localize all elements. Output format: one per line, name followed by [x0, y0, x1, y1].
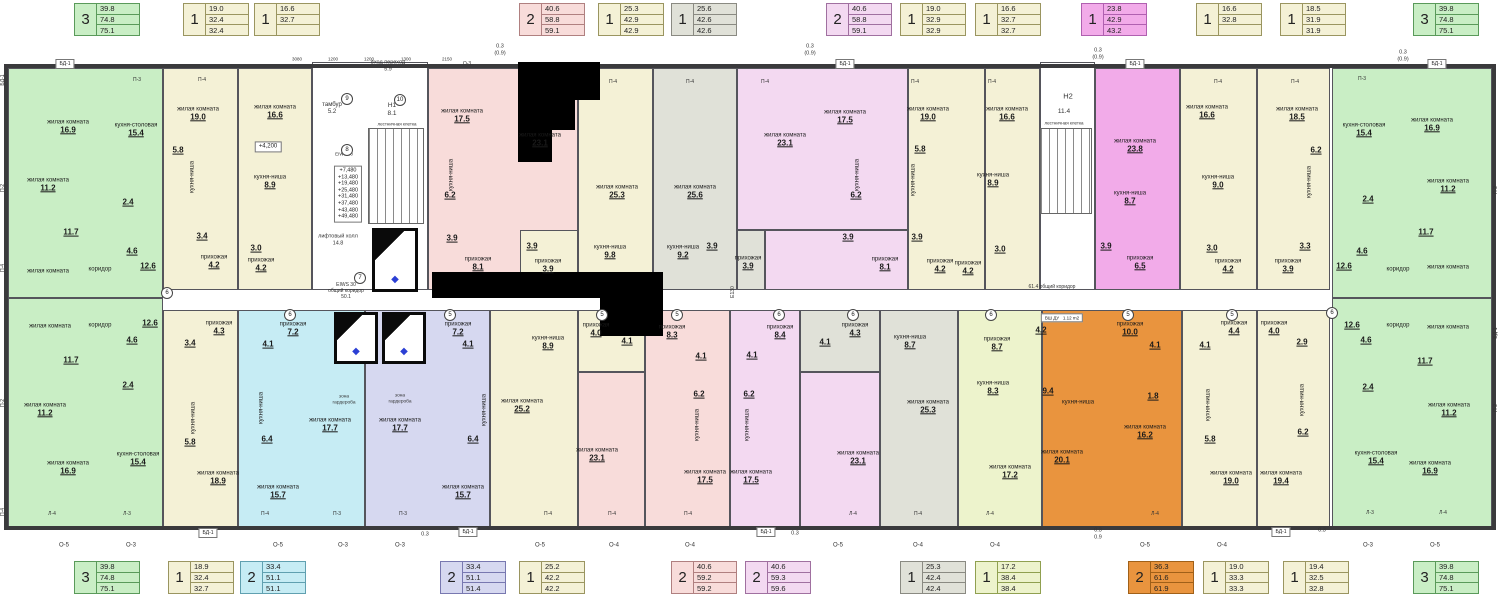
- room-label: жилая комната23.1: [837, 450, 879, 465]
- badge-room-count: 1: [976, 4, 998, 35]
- room-label: кухня-столовая15.4: [1343, 122, 1386, 137]
- room-label: жилая комната15.7: [442, 484, 484, 499]
- room-area: 8.3: [659, 331, 686, 340]
- room-area: 10.0: [1117, 328, 1144, 337]
- plan-annotation: П-3: [1358, 76, 1366, 82]
- unit-1r-25.3-bot[interactable]: [800, 310, 880, 372]
- badge-area-value: 61.6: [1151, 573, 1193, 584]
- top-badge-1[interactable]: 119.032.432.4: [183, 3, 249, 36]
- room-area: 1.8: [1147, 393, 1158, 402]
- room-area: 12.6: [1344, 322, 1360, 331]
- room-area: 4.1: [262, 341, 273, 350]
- plan-annotation: О-3: [338, 542, 348, 549]
- badge-room-count: 1: [901, 562, 923, 593]
- room-label: кухня-ниша9.2: [667, 244, 699, 259]
- badge-area-value: 43.2: [1104, 25, 1146, 35]
- room-area: 25.6: [674, 191, 716, 200]
- room-area: 4.2: [248, 264, 275, 273]
- room-label: прихожая8.7: [984, 336, 1011, 351]
- room-area: 16.9: [1409, 467, 1451, 476]
- badge-area-value: 61.9: [1151, 583, 1193, 593]
- room-area: 17.5: [730, 476, 772, 485]
- room-label: прихожая3.9: [735, 255, 762, 270]
- badge-area-value: 33.4: [463, 562, 505, 573]
- room-label: прихожая4.0: [583, 322, 610, 337]
- badge-area-value: 40.6: [542, 4, 584, 15]
- room-area: 3.3: [1299, 243, 1310, 252]
- top-badge-12[interactable]: 339.874.875.1: [1413, 3, 1479, 36]
- door-number: 5: [1122, 309, 1134, 321]
- bottom-badge-9[interactable]: 236.361.661.9: [1128, 561, 1194, 594]
- badge-areas: 18.932.432.7: [191, 562, 233, 593]
- room-area: 23.1: [519, 139, 561, 148]
- void-shaft: [432, 272, 663, 298]
- room-label: кухня-ниша9.8: [594, 244, 626, 259]
- badge-area-value: 33.3: [1226, 573, 1268, 584]
- room-area: 11.7: [63, 229, 78, 238]
- bottom-badge-7[interactable]: 125.342.442.4: [900, 561, 966, 594]
- badge-room-count: 1: [1082, 4, 1104, 35]
- top-badge-2[interactable]: 116.632.7: [254, 3, 320, 36]
- room-area: 2.4: [122, 199, 133, 208]
- room-label: жилая комната: [27, 269, 69, 276]
- room-area: 4.3: [842, 329, 869, 338]
- badge-areas: 19.032.432.4: [206, 4, 248, 35]
- room-label: кухня-столовая15.4: [117, 451, 160, 466]
- badge-areas: 25.642.642.6: [694, 4, 736, 35]
- badge-area-value: 74.8: [97, 15, 139, 26]
- elevator-icon: ◆: [391, 275, 399, 285]
- room-area: 18.5: [1276, 113, 1318, 122]
- room-label: 6.2: [693, 391, 704, 400]
- room-area: 8.7: [1114, 197, 1146, 206]
- unit-1r-19-bot[interactable]: [1182, 310, 1257, 528]
- room-area: 6.2: [1310, 147, 1321, 156]
- room-name: кухня-ниша: [1062, 400, 1094, 407]
- badge-areas: 16.632.7: [277, 4, 319, 35]
- plan-annotation: П-2: [0, 399, 6, 407]
- room-label: 2.9: [1296, 339, 1307, 348]
- room-area: 5.8: [1204, 436, 1215, 445]
- badge-area-value: 25.3: [923, 562, 965, 573]
- room-name: кухня-ниша: [1307, 166, 1314, 198]
- plan-annotation: 3080: [292, 56, 302, 61]
- plan-annotation: БД-1: [756, 527, 775, 537]
- badge-areas: 25.242.242.2: [542, 562, 584, 593]
- badge-area-value: 59.1: [849, 25, 891, 35]
- plan-annotation: 0.3: [421, 532, 429, 539]
- room-area: 11.2: [24, 409, 66, 418]
- bottom-badge-2[interactable]: 233.451.151.1: [240, 561, 306, 594]
- elevator-icon: ◆: [400, 347, 408, 357]
- room-label: жилая комната19.0: [907, 106, 949, 121]
- room-name: кухня-ниша: [695, 409, 702, 441]
- room-area: 4.1: [1199, 342, 1210, 351]
- room-label: кухня-ниша8.3: [977, 380, 1009, 395]
- badge-area-value: 32.8: [1306, 583, 1348, 593]
- room-label: 3.0: [1206, 245, 1217, 254]
- room-label: жилая комната16.9: [1411, 117, 1453, 132]
- room-area: 3.4: [196, 233, 207, 242]
- room-label: кухня-ниша8.7: [894, 334, 926, 349]
- room-area: 8.7: [984, 343, 1011, 352]
- void-shaft: [518, 62, 600, 100]
- badge-room-count: 1: [1281, 4, 1303, 35]
- badge-area-value: 59.6: [768, 583, 810, 593]
- top-badge-10[interactable]: 116.632.8: [1196, 3, 1262, 36]
- badge-area-value: 40.6: [768, 562, 810, 573]
- door-number: 8: [341, 144, 353, 156]
- plan-annotation: О-3: [126, 542, 136, 549]
- plan-annotation: Л-4: [1439, 510, 1447, 516]
- door-number: 5: [444, 309, 456, 321]
- room-area: 6.4: [467, 436, 478, 445]
- plan-annotation: БД-1: [1271, 527, 1290, 537]
- bottom-badge-8[interactable]: 117.238.438.4: [975, 561, 1041, 594]
- room-area: 4.6: [126, 337, 137, 346]
- room-name: коридор: [1387, 323, 1410, 330]
- badge-areas: 17.238.438.4: [998, 562, 1040, 593]
- room-name: коридор: [1387, 267, 1410, 274]
- plan-annotation: П-2: [0, 184, 6, 192]
- plan-annotation: П-4: [988, 79, 996, 85]
- room-label: жилая комната17.5: [730, 469, 772, 484]
- room-area: 11.2: [1427, 185, 1469, 194]
- room-area: 4.1: [621, 338, 632, 347]
- badge-areas: 18.531.931.9: [1303, 4, 1345, 35]
- badge-area-value: 36.3: [1151, 562, 1193, 573]
- badge-areas: 25.342.442.4: [923, 562, 965, 593]
- room-label: жилая комната17.7: [379, 417, 421, 432]
- room-label: прихожая4.0: [1261, 320, 1288, 335]
- room-area: 18.9: [197, 477, 239, 486]
- unit-2r-violet-bot[interactable]: [730, 310, 800, 528]
- badge-areas: 16.632.8: [1219, 4, 1261, 35]
- plan-annotation: П-4: [684, 511, 692, 517]
- plan-annotation: Н2: [1063, 92, 1073, 101]
- room-area: 9.2: [667, 251, 699, 260]
- room-area: 16.9: [47, 467, 89, 476]
- badge-area-value: 17.2: [998, 562, 1040, 573]
- plan-annotation: 0.3: [1318, 528, 1326, 535]
- room-label: прихожая7.2: [280, 321, 307, 336]
- bottom-badge-3[interactable]: 233.451.151.4: [440, 561, 506, 594]
- top-badge-0[interactable]: 339.874.875.1: [74, 3, 140, 36]
- badge-areas: 40.659.259.2: [694, 562, 736, 593]
- plan-annotation: Л-4: [48, 511, 56, 517]
- badge-area-value: 42.2: [542, 573, 584, 584]
- room-label: 4.1: [746, 352, 757, 361]
- room-label: кухня-ниша8.9: [977, 172, 1009, 187]
- plan-annotation: О-4: [913, 542, 923, 549]
- door-number: 6: [284, 309, 296, 321]
- plan-annotation: 1200: [364, 56, 374, 61]
- badge-area-value: 51.1: [263, 583, 305, 593]
- badge-areas: 36.361.661.9: [1151, 562, 1193, 593]
- badge-area-value: 75.1: [97, 25, 139, 35]
- room-label: прихожая4.2: [1215, 258, 1242, 273]
- plan-annotation: БД-1: [835, 59, 854, 69]
- top-badge-9[interactable]: 123.842.943.2: [1081, 3, 1147, 36]
- plan-annotation: 1300: [401, 56, 411, 61]
- room-label: 6.4: [467, 436, 478, 445]
- room-label: 5.8: [172, 147, 183, 156]
- plan-annotation: П-4: [1214, 79, 1222, 85]
- badge-area-value: 32.4: [206, 15, 248, 26]
- room-label: жилая комната18.5: [1276, 106, 1318, 121]
- room-area: 25.2: [501, 405, 543, 414]
- room-area: 5.8: [172, 147, 183, 156]
- badge-area-value: 32.7: [277, 15, 319, 26]
- room-name: коридор: [89, 267, 112, 274]
- bottom-badge-1[interactable]: 118.932.432.7: [168, 561, 234, 594]
- badge-area-value: 32.9: [923, 25, 965, 35]
- bottom-badge-5[interactable]: 240.659.259.2: [671, 561, 737, 594]
- plan-annotation: П-2: [1493, 186, 1499, 194]
- room-label: 5.8: [1204, 436, 1215, 445]
- bottom-badge-11[interactable]: 119.432.532.8: [1283, 561, 1349, 594]
- room-label: жилая комната25.2: [501, 398, 543, 413]
- room-label: жилая комната16.9: [47, 119, 89, 134]
- room-label: 5.8: [184, 439, 195, 448]
- room-area: 8.9: [254, 181, 286, 190]
- top-badge-8[interactable]: 116.632.732.7: [975, 3, 1041, 36]
- room-label: кухня-ниша: [1300, 384, 1307, 416]
- door-number: 7: [354, 272, 366, 284]
- room-label: кухня-ниша: [259, 392, 266, 424]
- top-badge-6[interactable]: 240.658.859.1: [826, 3, 892, 36]
- room-area: 7.2: [280, 328, 307, 337]
- room-area: 3.0: [1206, 245, 1217, 254]
- room-label: жилая комната16.2: [1124, 424, 1166, 439]
- room-name: кухня-ниша: [855, 159, 862, 191]
- unit-2r-violet-top[interactable]: [737, 68, 908, 230]
- badge-areas: 19.432.532.8: [1306, 562, 1348, 593]
- badge-area-value: 16.6: [998, 4, 1040, 15]
- room-label: жилая комната23.1: [519, 132, 561, 147]
- top-badge-3[interactable]: 240.658.859.1: [519, 3, 585, 36]
- room-area: 4.1: [746, 352, 757, 361]
- badge-areas: 16.632.732.7: [998, 4, 1040, 35]
- room-area: 11.7: [1417, 358, 1432, 367]
- plan-annotation: лифтовый холл 14.8: [318, 233, 358, 246]
- badge-area-value: 51.1: [463, 573, 505, 584]
- room-label: прихожая3.9: [535, 258, 562, 273]
- room-area: 4.2: [927, 265, 954, 274]
- badge-area-value: 75.1: [97, 583, 139, 593]
- room-label: 3.9: [911, 234, 922, 243]
- badge-area-value: 19.4: [1306, 562, 1348, 573]
- room-area: 12.6: [1336, 263, 1352, 272]
- room-label: кухня-ниша8.7: [1114, 190, 1146, 205]
- badge-area-value: 39.8: [1436, 562, 1478, 573]
- badge-area-value: 51.4: [463, 583, 505, 593]
- room-area: 3.9: [1100, 243, 1111, 252]
- badge-room-count: 2: [441, 562, 463, 593]
- room-area: 9.4: [1042, 388, 1053, 397]
- room-area: 6.2: [693, 391, 704, 400]
- badge-area-value: 25.6: [694, 4, 736, 15]
- unit-1r-18.5-top[interactable]: [1257, 68, 1330, 290]
- room-label: 12.6: [140, 263, 156, 272]
- room-area: 8.9: [977, 179, 1009, 188]
- room-area: 6.2: [1297, 429, 1308, 438]
- room-area: 3.9: [446, 235, 457, 244]
- plan-annotation: О-3: [1363, 542, 1373, 549]
- plan-annotation: П-4: [544, 511, 552, 517]
- plan-annotation: П-4: [609, 79, 617, 85]
- void-shaft: [600, 296, 663, 336]
- unit-1r-18.9-bot[interactable]: [163, 310, 238, 528]
- unit-2r-pink-bot[interactable]: [645, 310, 730, 528]
- room-label: 6.4: [261, 436, 272, 445]
- room-area: 16.9: [47, 126, 89, 135]
- room-label: кухня-столовая15.4: [1355, 450, 1398, 465]
- room-name: жилая комната: [1427, 265, 1469, 272]
- room-area: 16.6: [986, 113, 1028, 122]
- badge-area-value: 42.2: [542, 583, 584, 593]
- plan-annotation: О-4: [1217, 542, 1227, 549]
- room-label: 6.2: [850, 192, 861, 201]
- room-area: 11.2: [1428, 409, 1470, 418]
- room-label: жилая комната: [1427, 325, 1469, 332]
- room-area: 8.1: [872, 263, 899, 272]
- unit-1r-19.4-bot[interactable]: [1257, 310, 1330, 528]
- plan-annotation: 0.3 (0.9): [804, 43, 815, 56]
- room-area: 4.2: [1035, 327, 1046, 336]
- top-badge-7[interactable]: 119.032.932.9: [900, 3, 966, 36]
- room-area: 3.9: [842, 234, 853, 243]
- bottom-badge-0[interactable]: 339.874.875.1: [74, 561, 140, 594]
- room-label: 3.9: [526, 243, 537, 252]
- room-area: 16.2: [1124, 431, 1166, 440]
- room-label: 4.1: [262, 341, 273, 350]
- room-name: кухня-ниша: [449, 159, 456, 191]
- bottom-badge-12[interactable]: 339.874.875.1: [1413, 561, 1479, 594]
- badge-area-value: 42.9: [621, 25, 663, 35]
- room-label: 12.6: [1344, 322, 1360, 331]
- plan-annotation: П-4: [911, 79, 919, 85]
- room-area: 25.3: [596, 191, 638, 200]
- badge-room-count: 1: [169, 562, 191, 593]
- badge-area-value: 40.6: [694, 562, 736, 573]
- plan-annotation: +4,200: [255, 141, 282, 152]
- room-label: кухня-ниша8.9: [254, 174, 286, 189]
- room-name: жилая комната: [27, 269, 69, 276]
- room-label: прихожая4.2: [927, 258, 954, 273]
- badge-area-value: 32.5: [1306, 573, 1348, 584]
- room-label: жилая комната15.7: [257, 484, 299, 499]
- room-label: жилая комната19.4: [1260, 470, 1302, 485]
- door-number: 6: [161, 287, 173, 299]
- plan-annotation: ВШ ДУ 1.12 m2: [1041, 313, 1083, 322]
- plan-annotation: БД-1: [55, 59, 74, 69]
- room-area: 4.0: [583, 329, 610, 338]
- room-label: кухня-ниша: [449, 159, 456, 191]
- door-number: 6: [985, 309, 997, 321]
- staircase: [1040, 128, 1092, 214]
- void-shaft: [518, 100, 575, 130]
- room-label: коридор: [1387, 323, 1410, 330]
- room-label: 3.9: [842, 234, 853, 243]
- room-label: 5.8: [914, 146, 925, 155]
- door-number: 5: [1226, 309, 1238, 321]
- room-label: кухня-ниша: [745, 409, 752, 441]
- room-area: 8.9: [532, 342, 564, 351]
- top-badge-4[interactable]: 125.342.942.9: [598, 3, 664, 36]
- room-label: прихожая4.3: [842, 322, 869, 337]
- room-label: прихожая4.2: [201, 254, 228, 269]
- top-badge-5[interactable]: 125.642.642.6: [671, 3, 737, 36]
- plan-annotation: О-5: [273, 542, 283, 549]
- door-number: 6: [773, 309, 785, 321]
- plan-annotation: П-4: [608, 511, 616, 517]
- bottom-badge-4[interactable]: 125.242.242.2: [519, 561, 585, 594]
- unit-2r-orange-bot[interactable]: [1042, 310, 1182, 528]
- room-label: 4.6: [1360, 337, 1371, 346]
- plan-annotation: EIWS 30 общий коридор 50.1: [328, 282, 364, 300]
- room-area: 3.9: [1275, 265, 1302, 274]
- plan-annotation: Л-4: [1151, 511, 1159, 517]
- room-label: жилая комната16.9: [1409, 460, 1451, 475]
- top-badge-11[interactable]: 118.531.931.9: [1280, 3, 1346, 36]
- room-name: жилая комната: [1427, 325, 1469, 332]
- room-label: кухня-ниша: [911, 164, 918, 196]
- room-area: 4.1: [819, 339, 830, 348]
- room-area: 3.9: [526, 243, 537, 252]
- badge-area-value: 31.9: [1303, 25, 1345, 35]
- room-label: 4.1: [819, 339, 830, 348]
- badge-room-count: 2: [672, 562, 694, 593]
- plan-annotation: О-3: [463, 61, 471, 67]
- room-label: жилая комната11.2: [1427, 178, 1469, 193]
- room-area: 11.7: [63, 357, 78, 366]
- room-label: жилая комната20.1: [1041, 449, 1083, 464]
- room-label: 11.7: [1417, 358, 1432, 367]
- unit-1r-19b-top[interactable]: [908, 68, 985, 290]
- room-label: прихожая8.3: [659, 324, 686, 339]
- bottom-badge-6[interactable]: 240.659.359.6: [745, 561, 811, 594]
- badge-areas: 19.033.333.3: [1226, 562, 1268, 593]
- room-area: 12.6: [142, 320, 158, 329]
- bottom-badge-10[interactable]: 119.033.333.3: [1203, 561, 1269, 594]
- badge-area-value: 31.9: [1303, 15, 1345, 26]
- room-area: 4.3: [206, 327, 233, 336]
- badge-area-value: 42.9: [621, 15, 663, 26]
- badge-room-count: 2: [520, 4, 542, 35]
- badge-areas: 40.658.859.1: [542, 4, 584, 35]
- room-area: 15.7: [442, 491, 484, 500]
- badge-area-value: 32.7: [998, 25, 1040, 35]
- room-label: прихожая8.1: [465, 256, 492, 271]
- badge-areas: 33.451.151.4: [463, 562, 505, 593]
- room-name: коридор: [89, 323, 112, 330]
- room-area: 7.2: [445, 328, 472, 337]
- room-label: прихожая8.4: [767, 324, 794, 339]
- room-area: 23.1: [837, 457, 879, 466]
- room-label: 3.4: [196, 233, 207, 242]
- badge-areas: 40.659.359.6: [768, 562, 810, 593]
- room-label: кухня-ниша: [1206, 389, 1213, 421]
- room-label: 4.2: [1035, 327, 1046, 336]
- plan-annotation: +7,480 +13,480 +19,480 +25,480 +31,480 +…: [334, 166, 362, 223]
- room-label: жилая комната: [29, 324, 71, 331]
- room-area: 3.4: [184, 340, 195, 349]
- room-area: 4.1: [1149, 342, 1160, 351]
- room-label: 2.4: [1362, 384, 1373, 393]
- badge-area-value: 42.6: [694, 25, 736, 35]
- room-label: кухня-ниша: [855, 159, 862, 191]
